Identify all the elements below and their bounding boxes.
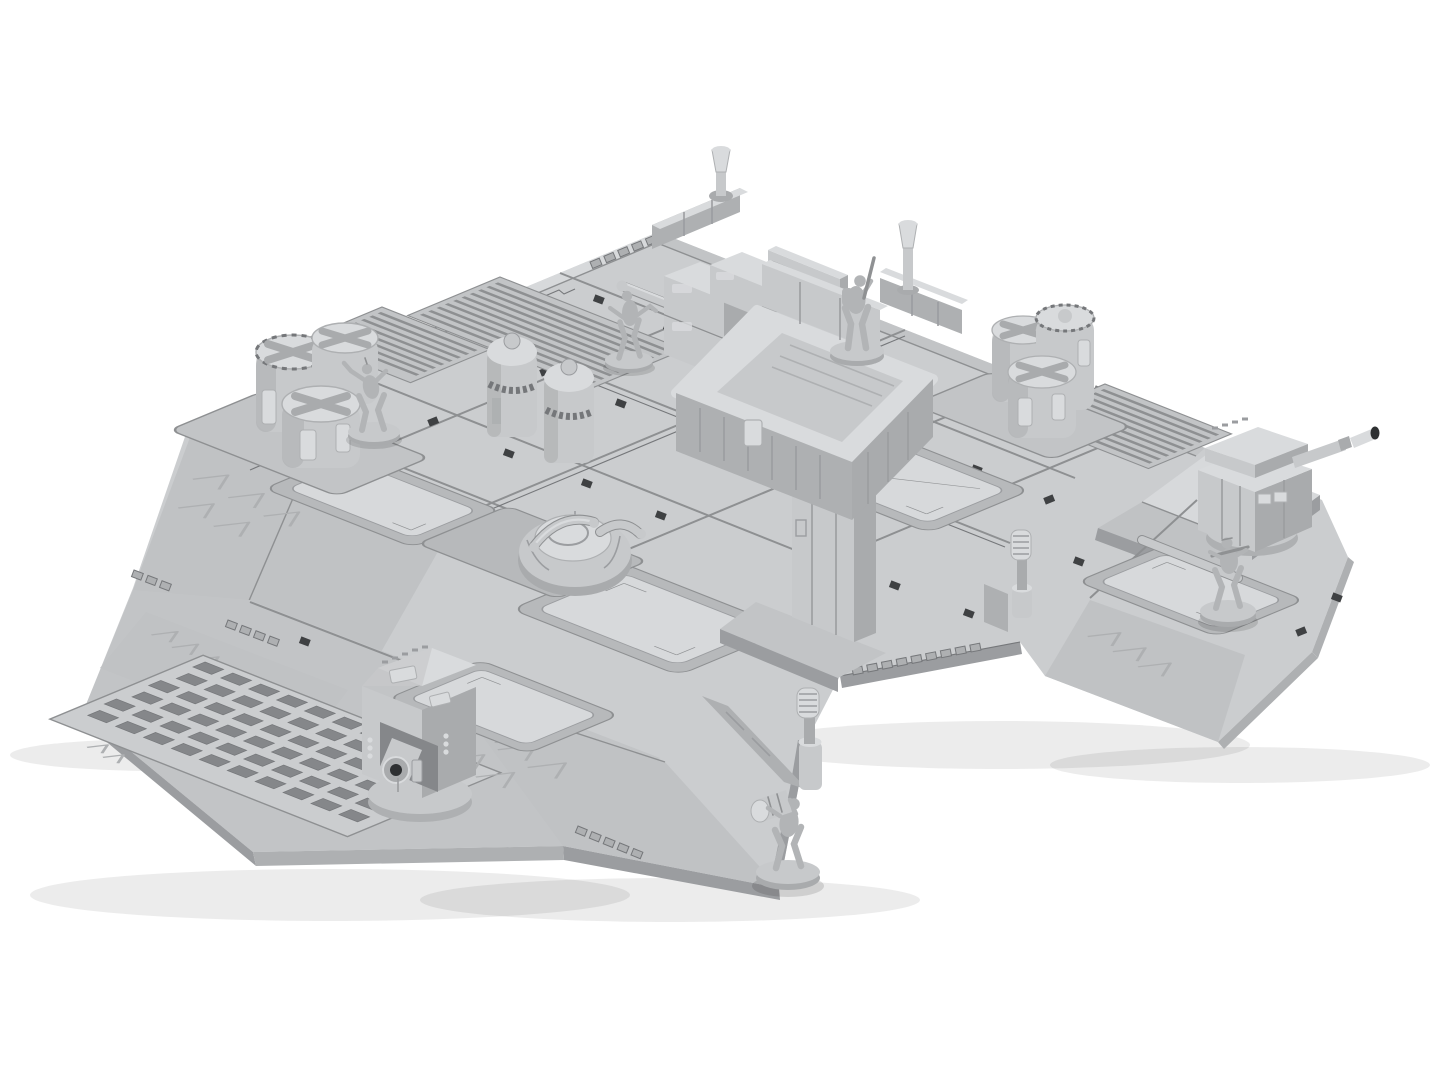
canister xyxy=(487,333,537,437)
barrier-wall xyxy=(880,268,968,334)
canister xyxy=(544,359,594,463)
barrier-wall xyxy=(652,188,748,249)
terrain-render-stage xyxy=(0,0,1445,1084)
fuel-drum xyxy=(282,386,360,468)
terrain-render xyxy=(0,0,1445,1084)
fuel-drum xyxy=(1008,356,1076,438)
gun-turret-right xyxy=(1198,419,1380,556)
sensor-mast xyxy=(709,146,733,202)
